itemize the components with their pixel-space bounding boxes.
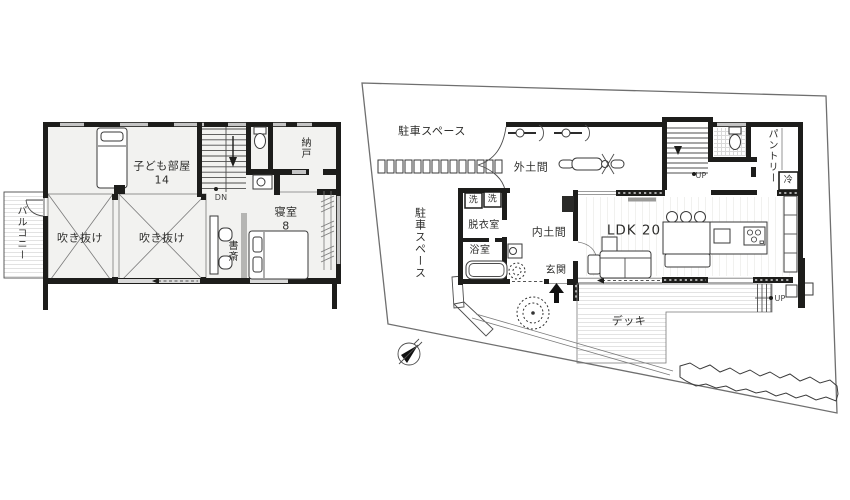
- deck-steps-icon: [755, 284, 773, 312]
- plant-small-icon: [509, 263, 525, 279]
- toilet-2f-icon: [254, 127, 266, 149]
- label-deck: デッキ: [612, 316, 647, 327]
- label-void-2: 吹き抜け: [139, 233, 185, 244]
- label-entrance: 玄関: [546, 266, 567, 276]
- label-outdoor-doma: 外土間: [514, 162, 549, 173]
- floorplan-canvas: バルコニー 子ども部屋 14 DN 納戸 寝室 8 書斎 吹き抜け 吹き抜け 駐…: [0, 0, 850, 500]
- label-washer-1: 洗: [469, 196, 479, 205]
- floor1-walls: [458, 117, 803, 308]
- label-kids-room: 子ども部屋: [133, 161, 191, 172]
- label-parking-left: 駐車スペース: [415, 207, 426, 279]
- single-bed-icon: [97, 128, 127, 194]
- bathtub-icon: [466, 261, 507, 279]
- label-study: 書斎: [226, 240, 236, 262]
- entry-arrow-icon: [549, 283, 564, 303]
- label-up-deck: UP: [774, 295, 785, 303]
- pantry-shelves: [779, 128, 798, 272]
- stairs-up-icon: [667, 128, 708, 176]
- hedge-icon: [680, 363, 838, 401]
- label-bathroom: 浴室: [470, 246, 491, 256]
- stove-icon: [744, 227, 765, 245]
- kitchen-island-icon: [663, 212, 767, 268]
- label-washer-2: 洗: [488, 195, 498, 204]
- washbasin-2f-icon: [253, 175, 272, 189]
- label-fridge: 冷: [784, 177, 794, 186]
- label-dn: DN: [215, 194, 228, 202]
- double-bed-icon: [249, 231, 308, 279]
- dining-table-icon: [665, 254, 710, 267]
- label-void-1: 吹き抜け: [57, 233, 103, 244]
- sofa-icon: [588, 237, 651, 278]
- motorcycle-icon: [559, 154, 624, 174]
- sink-icon: [714, 229, 730, 243]
- toilet-1f-icon: [729, 127, 741, 150]
- label-kids-room-size: 14: [155, 175, 170, 186]
- bicycle-icon: [508, 125, 590, 141]
- north-arrow-icon: [398, 339, 422, 365]
- label-storage: 納戸: [299, 137, 309, 159]
- label-pantry: パントリー: [766, 129, 776, 184]
- label-inner-doma: 内土間: [532, 227, 567, 238]
- label-bedroom-size: 8: [282, 221, 290, 232]
- label-balcony: バルコニー: [15, 206, 25, 261]
- washbasin-1f-icon: [508, 244, 522, 258]
- tree-icon: [517, 297, 549, 329]
- side-table-icon: [602, 237, 617, 251]
- label-bedroom: 寝室: [275, 207, 298, 218]
- label-dressing-room: 脱衣室: [468, 221, 500, 231]
- label-ldk: LDK 20: [607, 224, 661, 238]
- shoe-cabinet-icon: [562, 196, 574, 212]
- label-parking-top: 駐車スペース: [398, 126, 466, 137]
- label-up-stairs: UP: [695, 172, 706, 180]
- tv-icon: [628, 198, 656, 202]
